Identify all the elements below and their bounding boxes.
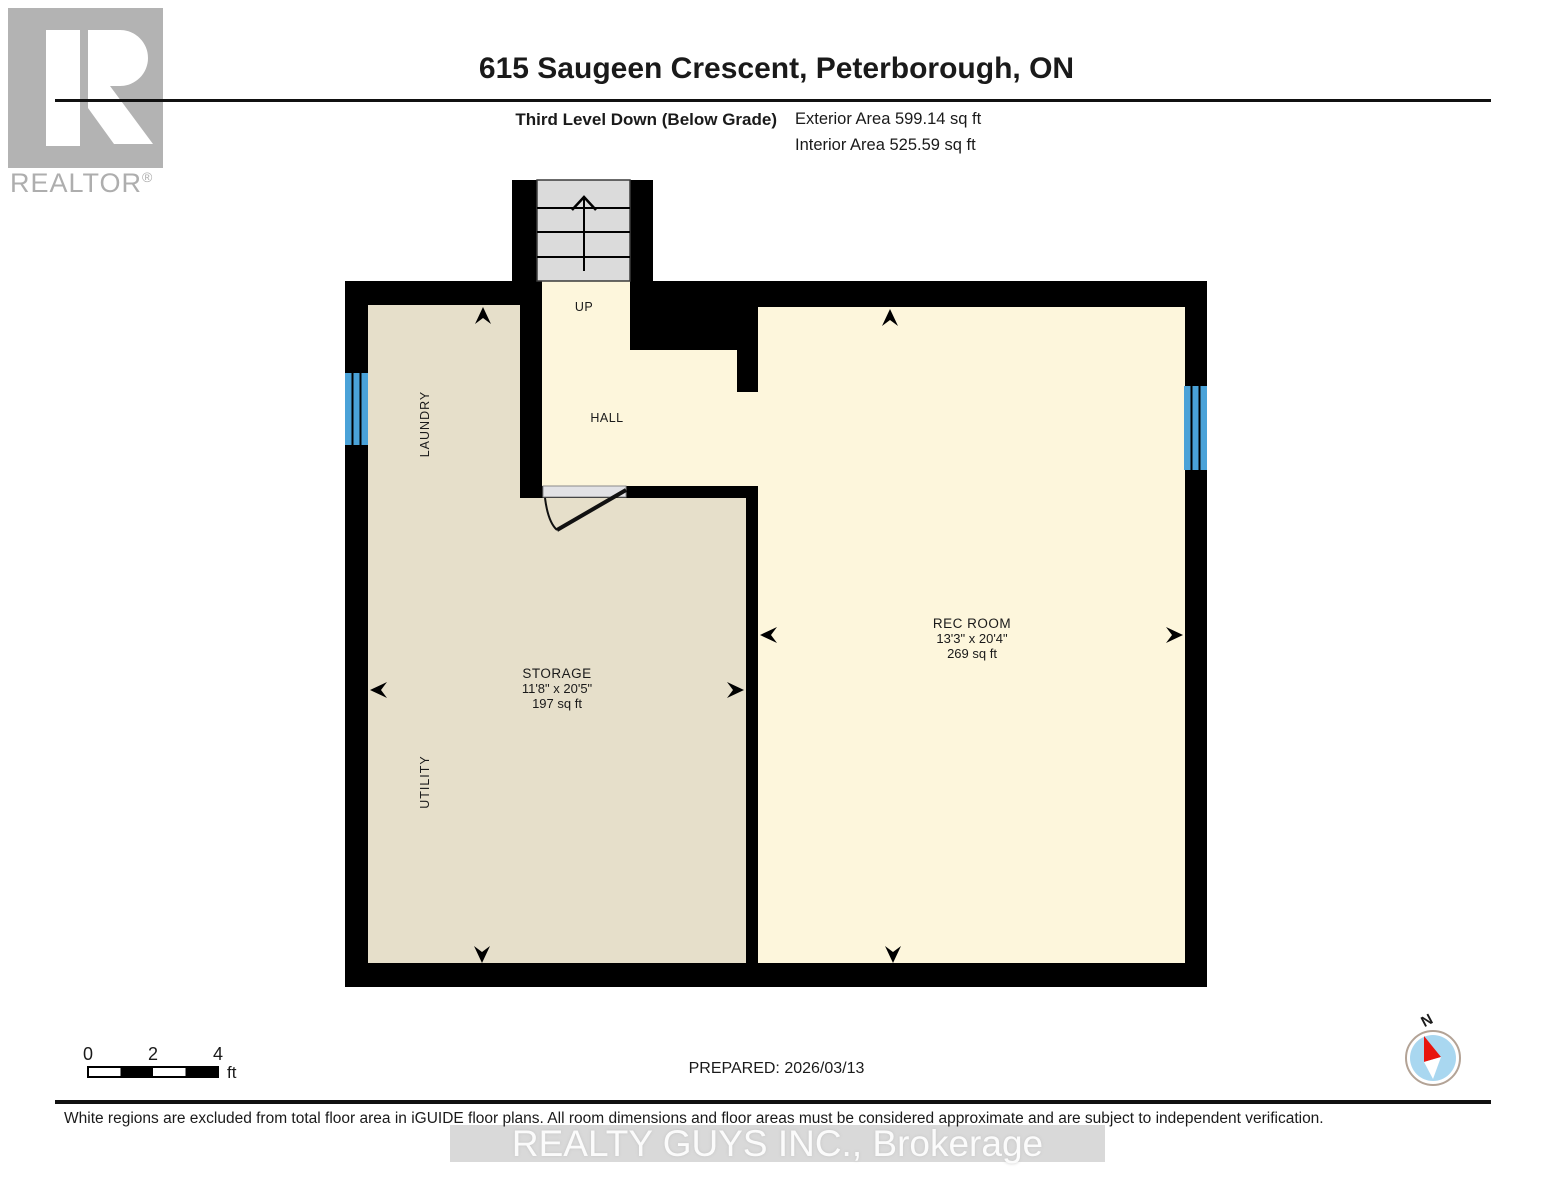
footer-divider-line [55,1100,1491,1104]
interior-area-value: Interior Area 525.59 sq ft [795,136,976,155]
exterior-area-value: Exterior Area 599.14 sq ft [795,110,981,129]
rec-room-name: REC ROOM [933,616,1011,631]
prepared-date: PREPARED: 2026/03/13 [0,1060,1553,1078]
brokerage-watermark: REALTY GUYS INC., Brokerage [450,1125,1105,1162]
left-window [345,373,368,445]
page-title: 615 Saugeen Crescent, Peterborough, ON [0,52,1553,86]
hall-rec-passage-floor [737,392,758,486]
floor-plan-page: REALTOR® 615 Saugeen Crescent, Peterboro… [0,0,1553,1200]
right-window [1184,386,1207,470]
compass: N [1398,1008,1470,1100]
hall-label: HALL [590,411,623,425]
realtor-logo-wordmark: REALTOR® [10,168,153,199]
rec-room-dimensions: 13'3" x 20'4" [936,631,1008,646]
realtor-logo-word: REALTOR [10,168,142,198]
realtor-logo [8,8,163,168]
floor-plan-drawing: UP HALL LAUNDRY UTILITY STORAGE 11'8" x … [330,170,1220,1000]
right-window-glass [1184,386,1207,470]
storage-room-dimensions: 11'8" x 20'5" [522,681,593,696]
compass-north-label: N [1418,1011,1436,1031]
utility-label: UTILITY [418,755,432,809]
level-label: Third Level Down (Below Grade) [515,110,777,130]
laundry-label: LAUNDRY [418,391,432,458]
title-divider-line [55,99,1491,102]
disclaimer-text: White regions are excluded from total fl… [64,1110,1504,1128]
registered-mark: ® [142,169,153,185]
up-label: UP [575,300,593,314]
storage-room-area: 197 sq ft [532,696,582,711]
storage-room-name: STORAGE [522,666,591,681]
rec-room-area: 269 sq ft [947,646,997,661]
hall-floor-lower [630,350,737,486]
realtor-logo-r-bar [46,30,80,146]
left-window-glass [345,373,368,445]
